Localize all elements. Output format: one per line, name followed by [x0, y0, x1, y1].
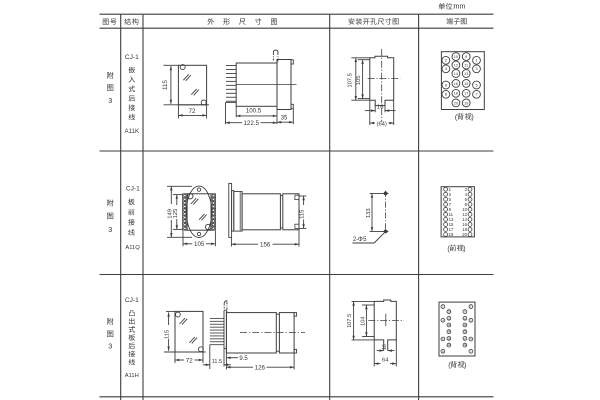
svg-text:CJ-1: CJ-1 [126, 186, 140, 193]
svg-text:(64): (64) [377, 121, 387, 127]
svg-text:20: 20 [462, 232, 467, 237]
svg-text:72: 72 [189, 108, 196, 115]
svg-text:Φ: Φ [358, 236, 363, 243]
svg-text:115: 115 [300, 210, 306, 219]
svg-text:): ) [464, 362, 466, 369]
svg-text:A11Q: A11Q [125, 245, 140, 251]
svg-text:9: 9 [465, 55, 467, 59]
svg-text:133: 133 [366, 208, 372, 218]
svg-text:64: 64 [382, 357, 389, 363]
svg-text:19: 19 [464, 101, 468, 105]
svg-text:9.5: 9.5 [239, 356, 248, 362]
svg-text:104: 104 [360, 317, 366, 326]
svg-text:A11H: A11H [125, 373, 139, 379]
svg-text:115: 115 [165, 330, 171, 339]
svg-text:107.5: 107.5 [347, 314, 353, 328]
svg-text:5: 5 [475, 83, 477, 87]
svg-text:105: 105 [194, 241, 205, 248]
svg-text:72: 72 [186, 357, 193, 364]
svg-text:122.5: 122.5 [243, 120, 259, 127]
svg-text:10: 10 [454, 55, 458, 59]
svg-text:19: 19 [449, 232, 454, 237]
svg-text:3: 3 [108, 225, 112, 234]
svg-text:16: 16 [382, 344, 388, 350]
svg-text:3: 3 [475, 67, 477, 71]
svg-text:A11K: A11K [124, 128, 140, 135]
svg-text:107.5: 107.5 [347, 73, 353, 88]
svg-text:6: 6 [445, 83, 447, 87]
svg-text:126: 126 [255, 365, 266, 372]
svg-text:115: 115 [162, 80, 169, 90]
svg-text:CJ-1: CJ-1 [125, 297, 139, 304]
svg-text:18: 18 [454, 92, 458, 96]
svg-text:): ) [463, 246, 465, 253]
svg-text:105: 105 [356, 76, 362, 86]
svg-text:1: 1 [475, 59, 477, 63]
svg-text:2: 2 [445, 59, 447, 63]
svg-text:8: 8 [445, 93, 447, 97]
svg-text:13: 13 [464, 72, 468, 76]
svg-text:100.5: 100.5 [246, 108, 262, 115]
svg-text:(: ( [447, 246, 450, 253]
svg-text:mm: mm [454, 4, 466, 11]
svg-text:16: 16 [377, 105, 383, 111]
svg-text:3: 3 [108, 96, 112, 105]
svg-text:4: 4 [445, 67, 447, 71]
svg-text:): ) [471, 114, 473, 121]
svg-text:156: 156 [260, 242, 271, 249]
svg-text:15: 15 [464, 82, 468, 86]
svg-text:7: 7 [475, 93, 477, 97]
svg-text:CJ-1: CJ-1 [125, 54, 139, 61]
svg-text:11.5: 11.5 [212, 359, 222, 365]
svg-text:3: 3 [108, 342, 112, 351]
svg-text:12: 12 [454, 63, 458, 67]
svg-text:17: 17 [464, 92, 468, 96]
svg-text:14: 14 [454, 72, 458, 76]
svg-text:16: 16 [454, 82, 458, 86]
svg-text:125: 125 [173, 209, 179, 219]
svg-text:20: 20 [454, 101, 458, 105]
svg-text:5: 5 [363, 237, 367, 243]
svg-text:35: 35 [281, 116, 288, 122]
svg-text:11: 11 [464, 63, 468, 67]
